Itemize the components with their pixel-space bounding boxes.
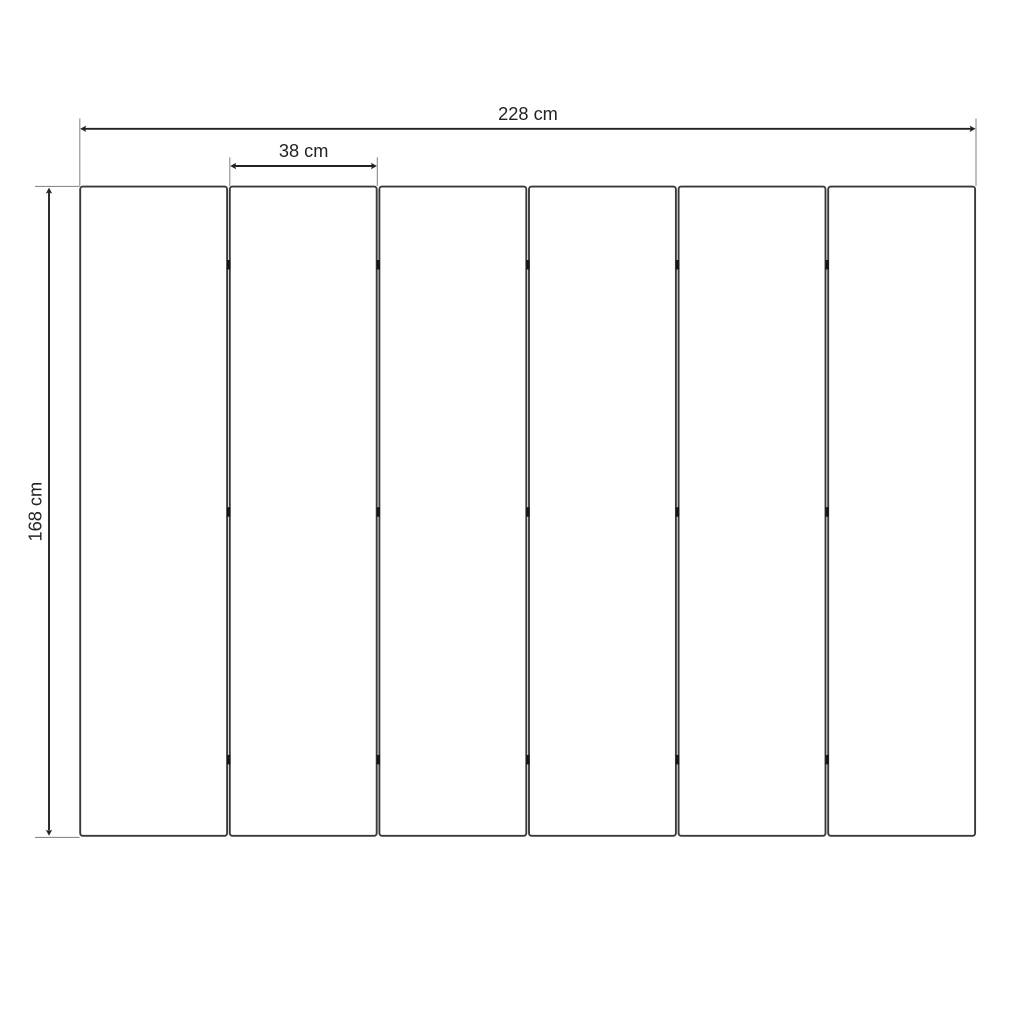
svg-text:168 cm: 168 cm	[26, 482, 46, 542]
svg-text:38 cm: 38 cm	[279, 141, 329, 161]
svg-text:228 cm: 228 cm	[498, 104, 558, 124]
